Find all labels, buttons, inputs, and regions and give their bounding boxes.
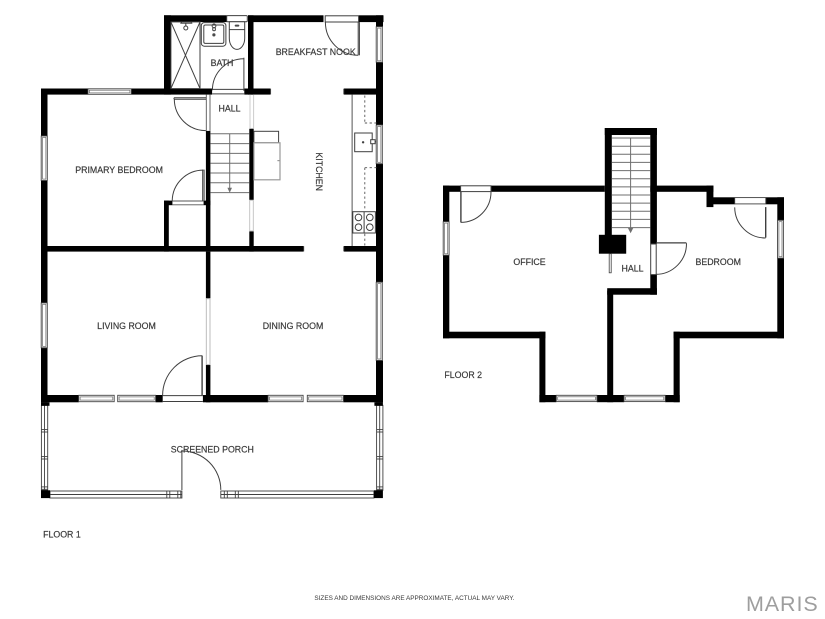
svg-text:BATH: BATH <box>211 58 234 68</box>
svg-text:KITCHEN: KITCHEN <box>314 152 324 191</box>
svg-text:HALL: HALL <box>218 104 240 114</box>
svg-text:MARIS: MARIS <box>746 592 819 616</box>
svg-text:FLOOR 2: FLOOR 2 <box>444 370 482 380</box>
svg-text:OFFICE: OFFICE <box>513 257 545 267</box>
svg-text:LIVING ROOM: LIVING ROOM <box>97 321 156 331</box>
svg-text:HALL: HALL <box>621 264 643 274</box>
svg-text:SCREENED PORCH: SCREENED PORCH <box>171 444 254 454</box>
svg-text:BEDROOM: BEDROOM <box>695 257 740 267</box>
svg-text:PRIMARY BEDROOM: PRIMARY BEDROOM <box>75 165 163 175</box>
svg-text:FLOOR 1: FLOOR 1 <box>43 530 81 540</box>
svg-text:BREAKFAST NOOK: BREAKFAST NOOK <box>276 47 356 57</box>
svg-text:DINING ROOM: DINING ROOM <box>263 321 324 331</box>
svg-text:SIZES AND DIMENSIONS ARE APPRO: SIZES AND DIMENSIONS ARE APPROXIMATE, AC… <box>314 595 514 602</box>
